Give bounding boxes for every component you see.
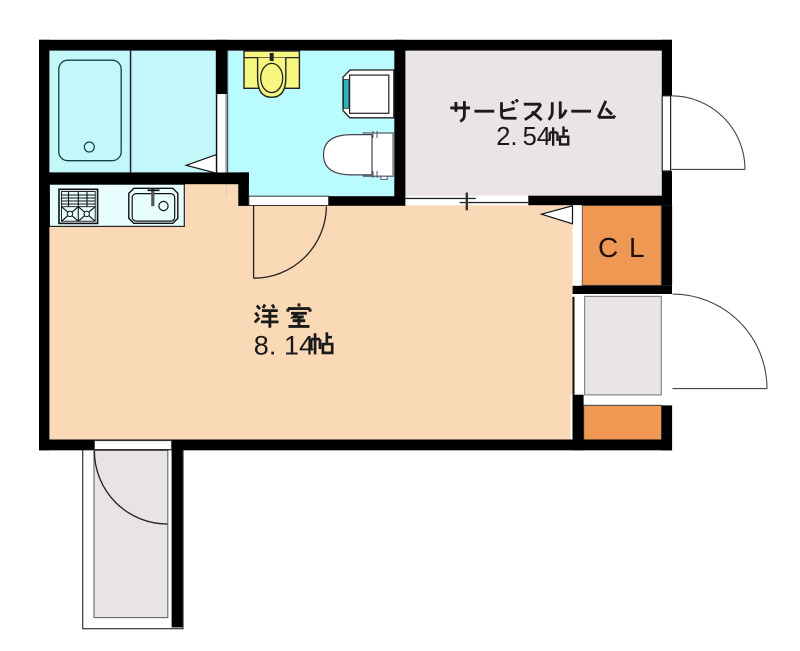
svg-text:L: L xyxy=(629,232,645,263)
svg-text:C: C xyxy=(598,232,618,263)
svg-text:14: 14 xyxy=(284,331,314,361)
svg-text:8.: 8. xyxy=(254,331,277,361)
svg-text:2.: 2. xyxy=(496,123,517,151)
svg-text:54: 54 xyxy=(523,123,551,151)
